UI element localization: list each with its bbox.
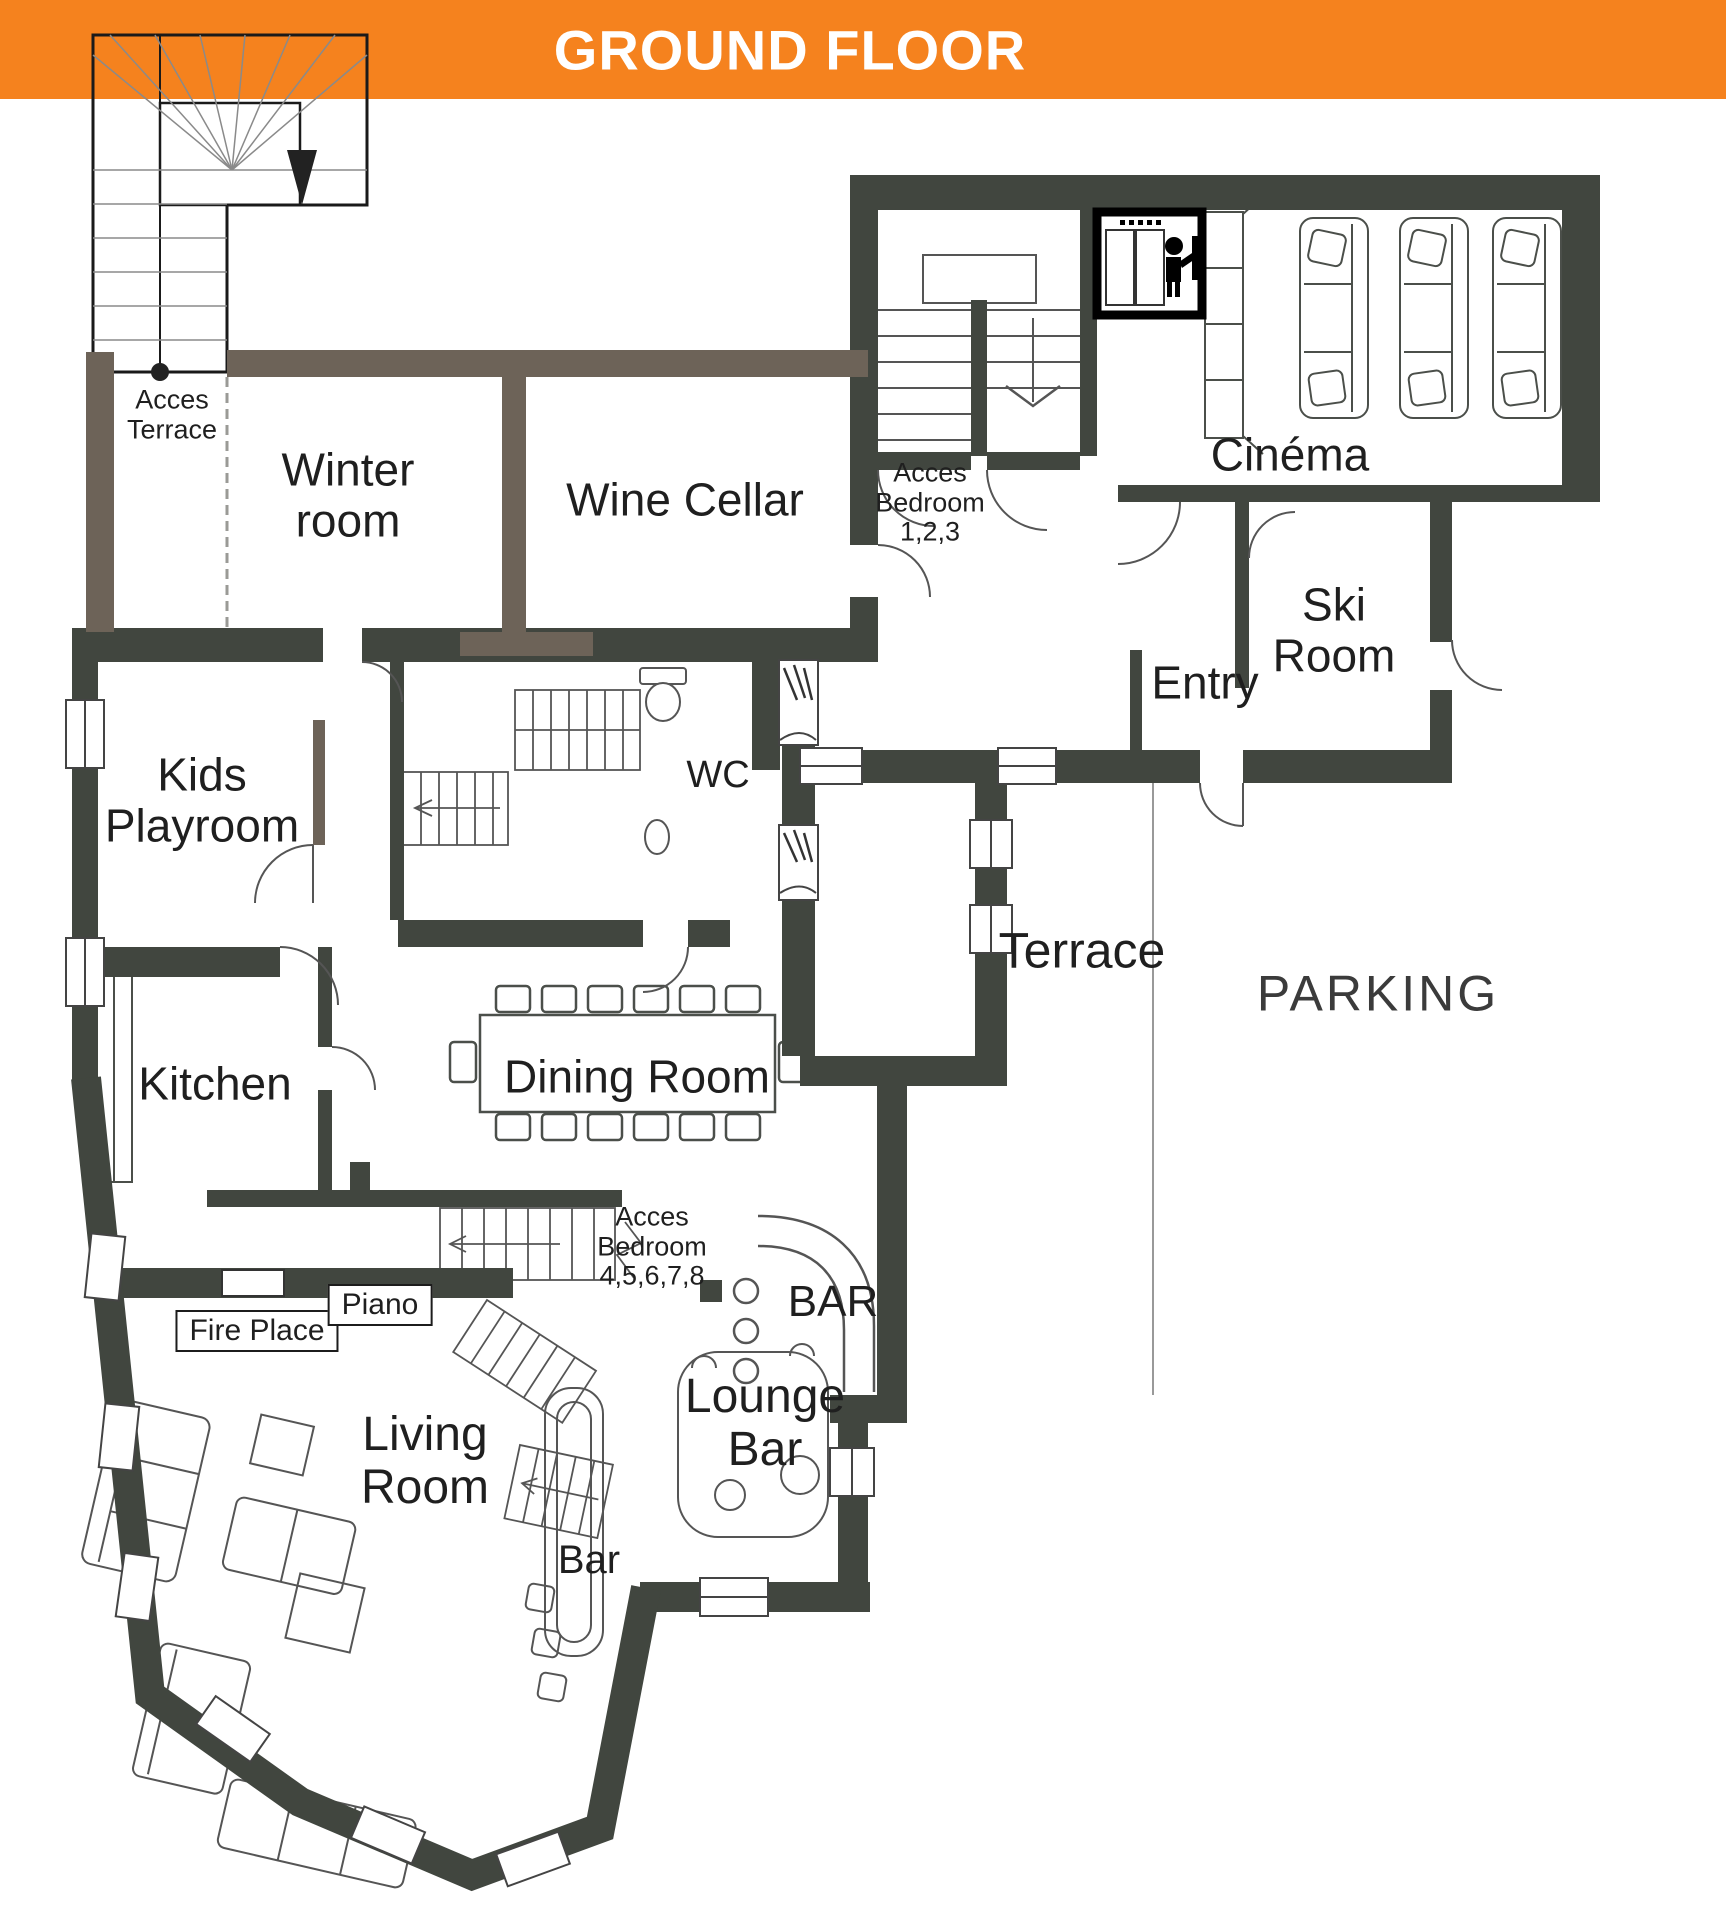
bar-stool bbox=[537, 1672, 567, 1702]
callout-fire-place: Fire Place bbox=[175, 1310, 338, 1352]
room-label-dining-room: Dining Room bbox=[377, 1052, 897, 1103]
room-label-kitchen: Kitchen bbox=[138, 1059, 291, 1110]
staircase-terrace bbox=[93, 35, 367, 381]
floor-plan-page: GROUND FLOOR bbox=[0, 0, 1726, 1920]
bar-stool bbox=[734, 1279, 758, 1303]
room-label-entry: Entry bbox=[1095, 658, 1315, 709]
room-label-living-room: Living Room bbox=[305, 1409, 545, 1515]
annotation-acces-bedroom-123: Acces Bedroom 1,2,3 bbox=[863, 458, 998, 547]
room-label-cinema: Cinéma bbox=[1130, 430, 1450, 481]
bar-stool bbox=[525, 1583, 555, 1613]
wc-sink bbox=[645, 820, 669, 854]
stairs-down-arrow-icon bbox=[287, 150, 317, 205]
room-label-winter-room: Winter room bbox=[253, 444, 443, 545]
room-label-terrace: Terrace bbox=[999, 924, 1166, 979]
room-label-lounge-bar: Lounge Bar bbox=[660, 1371, 870, 1477]
callout-piano: Piano bbox=[328, 1284, 433, 1326]
cinema-wardrobe bbox=[1205, 196, 1263, 454]
room-label-wc: WC bbox=[686, 755, 749, 797]
annotation-acces-bedroom-45678: Acces Bedroom 4,5,6,7,8 bbox=[572, 1202, 732, 1291]
fireplace-hearth bbox=[222, 1270, 284, 1296]
lounge-table bbox=[715, 1480, 745, 1510]
stair-section-marker bbox=[151, 363, 169, 381]
room-label-kids-playroom: Kids Playroom bbox=[67, 749, 337, 850]
room-label-bar-small: Bar bbox=[558, 1538, 620, 1582]
wc-toilet bbox=[640, 668, 686, 854]
area-label-parking: PARKING bbox=[1257, 967, 1499, 1022]
bar-stool bbox=[734, 1319, 758, 1343]
floor-plan-drawing bbox=[0, 0, 1726, 1920]
annotation-acces-terrace: Acces Terrace bbox=[87, 385, 257, 444]
pouf bbox=[285, 1573, 364, 1652]
cinema-sofas bbox=[1300, 218, 1561, 418]
elevator-icon bbox=[1097, 212, 1202, 315]
staircase-middle bbox=[403, 690, 640, 845]
room-label-bar: BAR bbox=[788, 1278, 878, 1326]
room-label-wine-cellar: Wine Cellar bbox=[475, 475, 895, 526]
